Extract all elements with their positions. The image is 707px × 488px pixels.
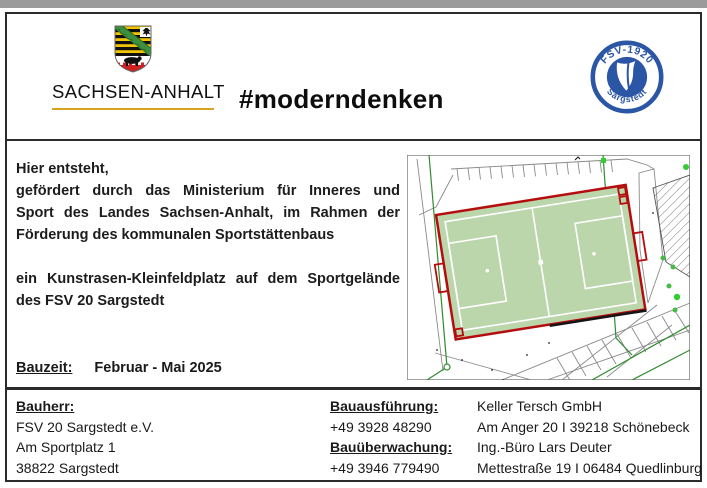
bauueberwachung-label: Bauüberwachung: xyxy=(330,437,452,458)
gold-underline xyxy=(52,108,214,110)
message-line: des FSV 20 Sargstedt xyxy=(16,290,400,312)
company-line: Am Anger 20 I 39218 Schönebeck xyxy=(477,417,702,438)
construction-period: Bauzeit:Februar - Mai 2025 xyxy=(16,360,222,376)
bauherr-block: Bauherr: FSV 20 Sargstedt e.V. Am Sportp… xyxy=(16,396,154,478)
sign-footer: Bauherr: FSV 20 Sargstedt e.V. Am Sportp… xyxy=(7,390,700,480)
message-line: Hier entsteht, xyxy=(16,158,400,180)
state-brand-block: SACHSEN-ANHALT xyxy=(52,24,214,110)
companies-block: Keller Tersch GmbH Am Anger 20 I 39218 S… xyxy=(477,396,702,478)
bauueberwachung-phone: +49 3946 779490 xyxy=(330,458,452,479)
photo-background-strip xyxy=(0,0,707,8)
company-line: Keller Tersch GmbH xyxy=(477,396,702,417)
bauherr-label: Bauherr: xyxy=(16,396,154,417)
campaign-slogan: #moderndenken xyxy=(239,84,444,115)
company-line: Ing.-Büro Lars Deuter xyxy=(477,437,702,458)
message-line: ein Kunstrasen-Kleinfeldplatz auf dem Sp… xyxy=(16,268,400,290)
construction-sign: SACHSEN-ANHALT #moderndenken FSV-1920 Sa… xyxy=(5,12,702,482)
bauausfuehrung-phone: +49 3928 48290 xyxy=(330,417,452,438)
sign-header: SACHSEN-ANHALT #moderndenken FSV-1920 Sa… xyxy=(7,14,700,141)
company-line: Mettestraße 19 I 06484 Quedlinburg xyxy=(477,458,702,479)
bauausfuehrung-label: Bauausführung: xyxy=(330,396,452,417)
bauzeit-value: Februar - Mai 2025 xyxy=(94,360,221,376)
bauherr-line: Am Sportplatz 1 xyxy=(16,437,154,458)
bauherr-line: 38822 Sargstedt xyxy=(16,458,154,479)
site-plan-drawing xyxy=(407,155,690,380)
contacts-block: Bauausführung: +49 3928 48290 Bauüberwac… xyxy=(330,396,452,478)
fsv-club-badge-icon: FSV-1920 Sargstedt xyxy=(589,39,665,115)
state-name: SACHSEN-ANHALT xyxy=(52,81,214,103)
bauzeit-label: Bauzeit: xyxy=(16,360,72,376)
message-line: Förderung des kommunalen Sportstättenbau… xyxy=(16,224,400,246)
project-description: Hier entsteht, gefördert durch das Minis… xyxy=(16,158,400,312)
bauherr-line: FSV 20 Sargstedt e.V. xyxy=(16,417,154,438)
sign-body: Hier entsteht, gefördert durch das Minis… xyxy=(7,141,700,390)
sachsen-anhalt-coat-of-arms-icon xyxy=(113,24,153,74)
message-line: Sport des Landes Sachsen-Anhalt, im Rahm… xyxy=(16,202,400,224)
message-line: gefördert durch das Ministerium für Inne… xyxy=(16,180,400,202)
